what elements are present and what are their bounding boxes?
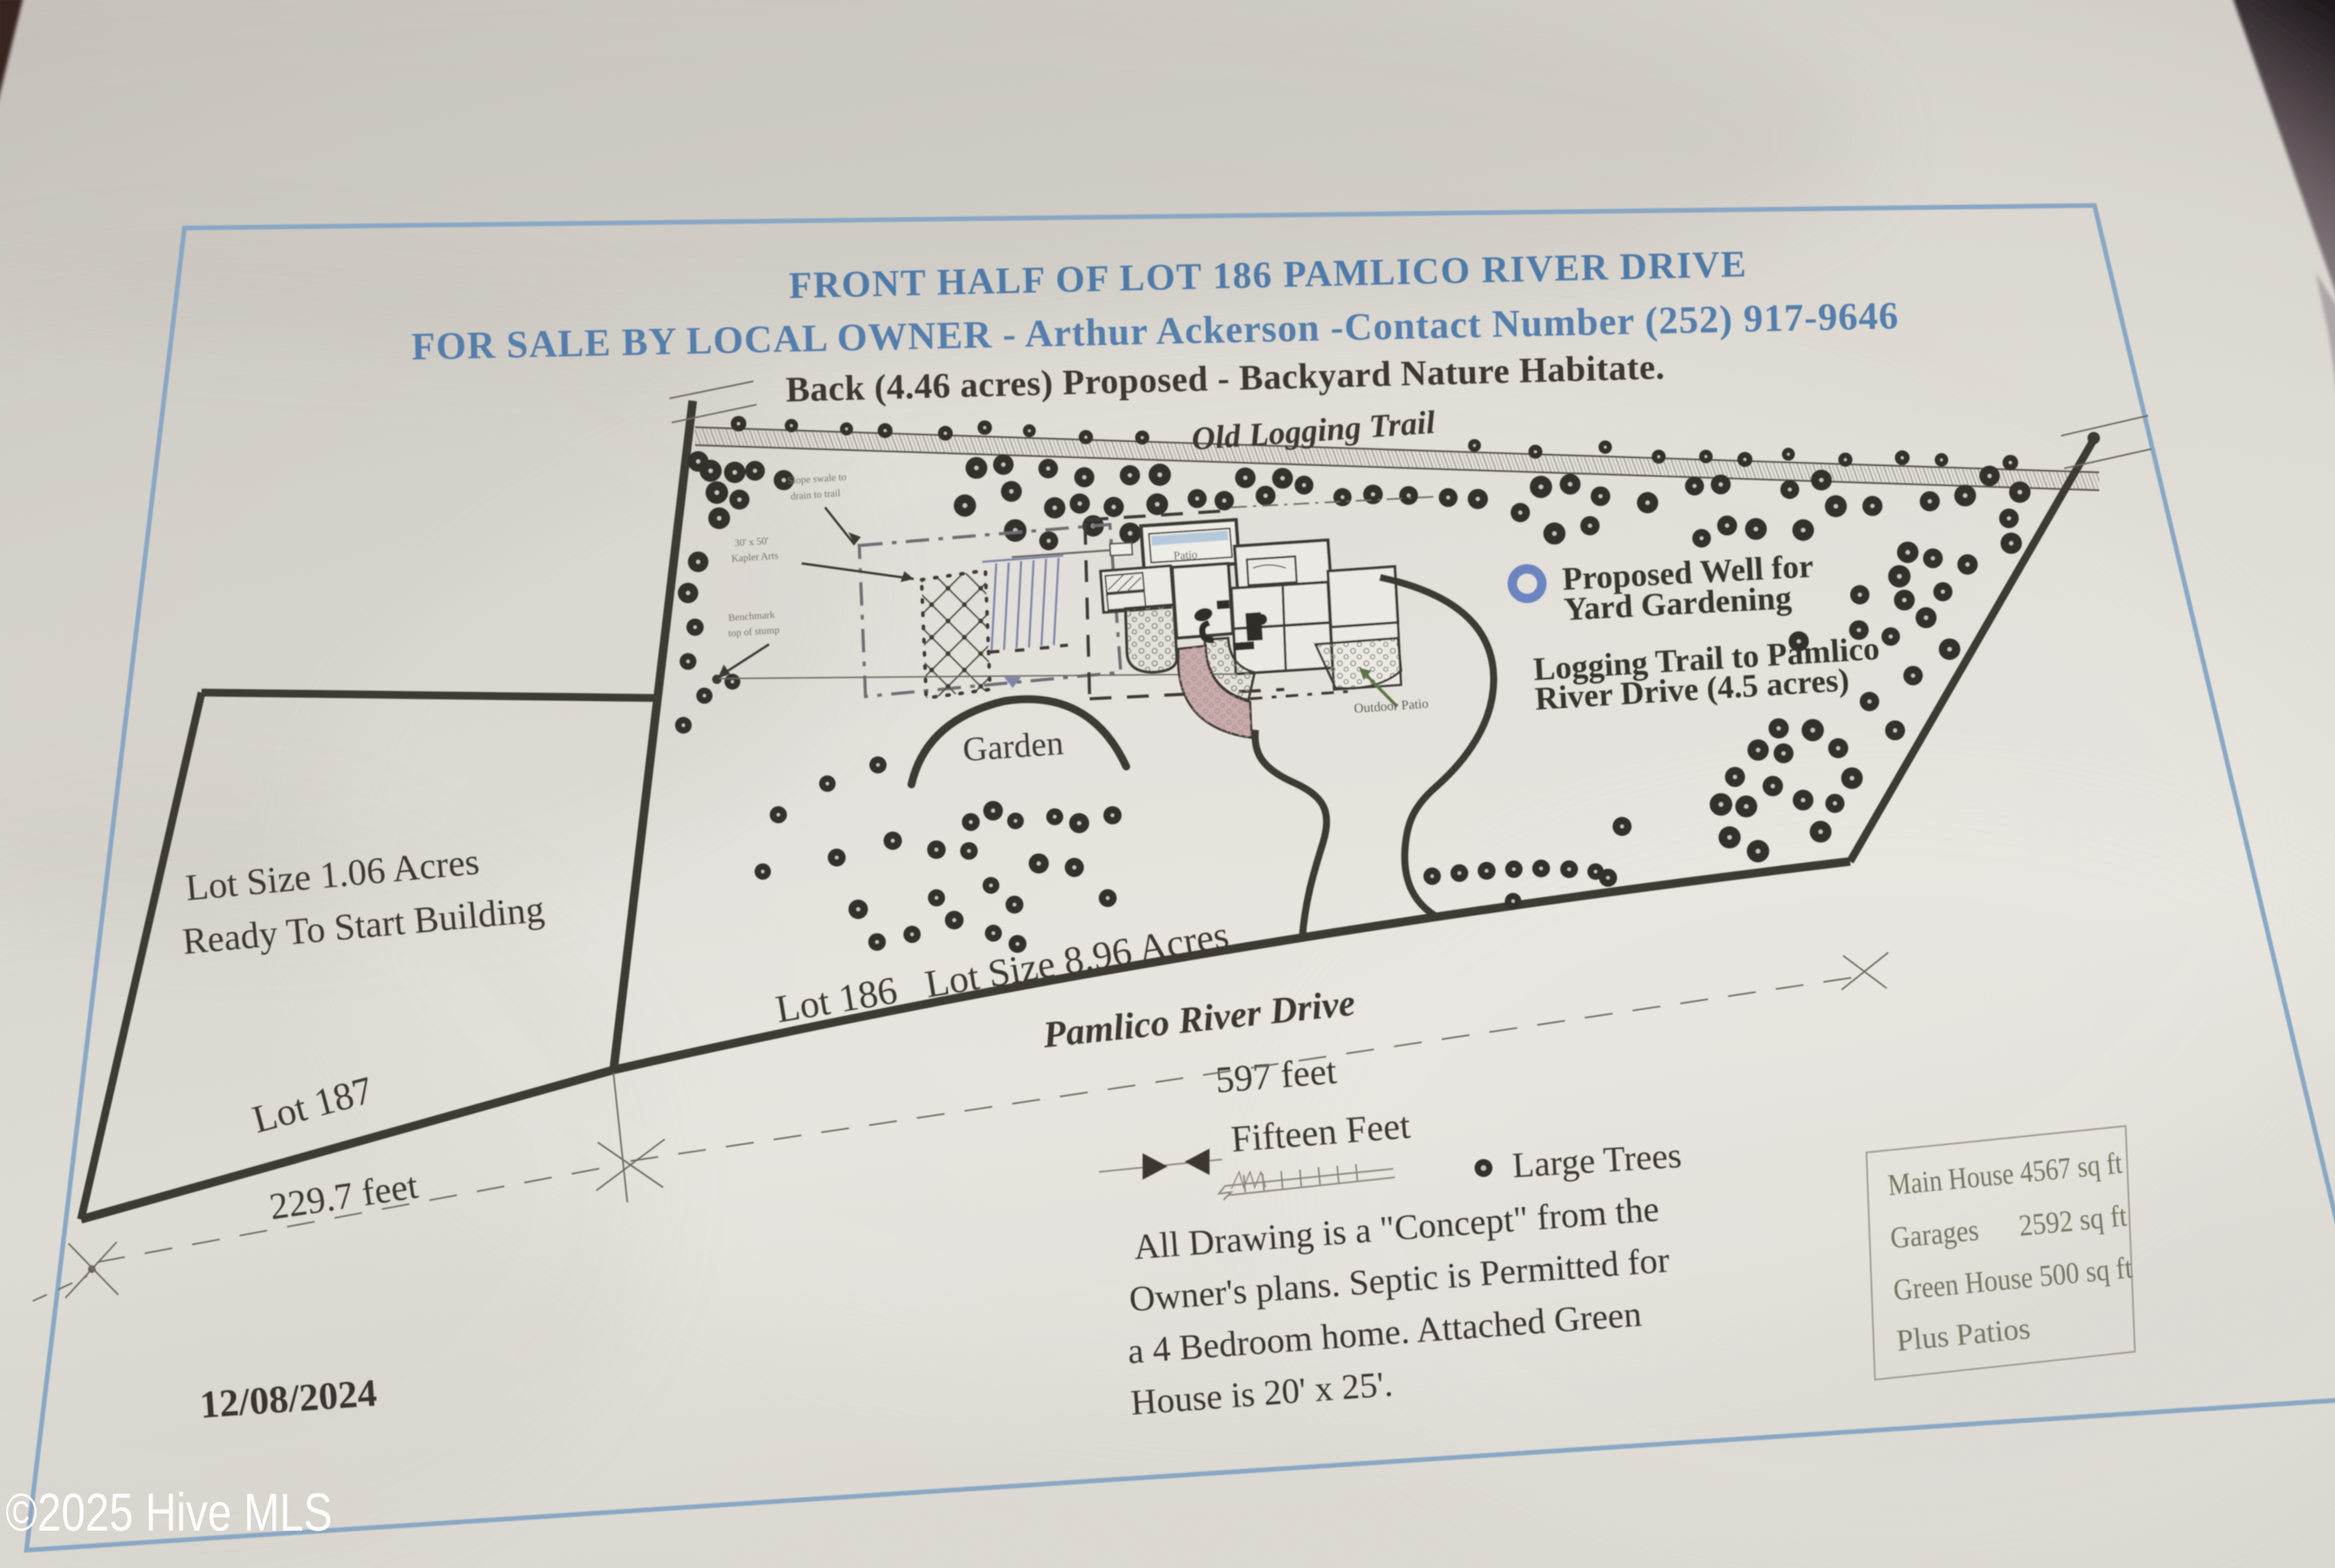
svg-text:©2025 Hive MLS: ©2025 Hive MLS	[5, 1482, 332, 1542]
